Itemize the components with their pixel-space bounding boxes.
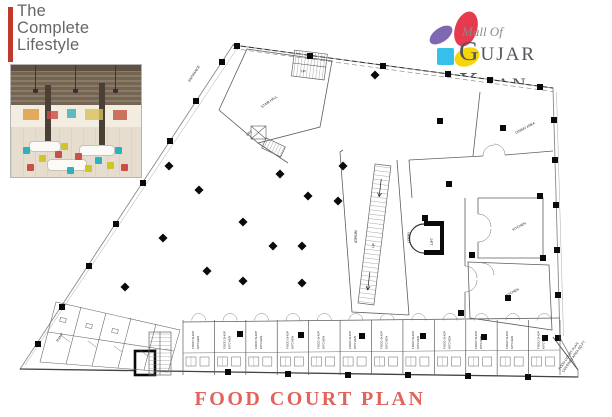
column-marker bbox=[446, 181, 452, 187]
column-marker bbox=[359, 333, 365, 339]
column-marker bbox=[445, 71, 451, 77]
column-marker bbox=[113, 221, 119, 227]
plan-title: FOOD COURT PLAN bbox=[120, 388, 500, 411]
shop-label: FOOD SHOP bbox=[474, 331, 478, 349]
shop-label: KITCHEN bbox=[416, 336, 420, 349]
shop-label: FOOD SHOP bbox=[285, 331, 289, 349]
column-marker bbox=[285, 371, 291, 377]
column-marker bbox=[500, 125, 506, 131]
column-marker bbox=[555, 292, 561, 298]
column-marker bbox=[380, 63, 386, 69]
column-marker bbox=[551, 117, 557, 123]
shop-label: FOOD SHOP bbox=[380, 331, 384, 349]
plan-micro-label: LOBBY bbox=[407, 231, 411, 243]
column-marker bbox=[86, 263, 92, 269]
lift-label: LIFT bbox=[430, 238, 434, 245]
shop-label: FOOD SHOP bbox=[411, 331, 415, 349]
column-marker bbox=[59, 304, 65, 310]
column-marker bbox=[237, 331, 243, 337]
column-marker bbox=[193, 98, 199, 104]
plan-outline bbox=[20, 45, 578, 377]
shop-label: FOOD SHOP bbox=[222, 331, 226, 349]
shop-label: FOOD SHOP bbox=[442, 331, 446, 349]
column-marker bbox=[525, 374, 531, 380]
column-marker bbox=[422, 215, 428, 221]
shop-label: KITCHEN bbox=[322, 336, 326, 349]
floor-plan-svg: LIFT FOOD SHOPKITCHENFOOD SHOPKITCHENFOO… bbox=[0, 0, 612, 417]
shop-label: KITCHEN bbox=[542, 336, 546, 349]
shop-label: KITCHEN bbox=[510, 336, 514, 349]
shop-label: KITCHEN bbox=[353, 336, 357, 349]
shop-label: KITCHEN bbox=[447, 336, 451, 349]
shop-label: KITCHEN bbox=[479, 336, 483, 349]
column-marker bbox=[554, 247, 560, 253]
column-marker bbox=[458, 310, 464, 316]
column-marker bbox=[307, 53, 313, 59]
column-marker bbox=[219, 59, 225, 65]
lift-shaft bbox=[135, 351, 155, 375]
shop-label: FOOD SHOP bbox=[348, 331, 352, 349]
plan-micro-label: ATRIUM bbox=[354, 230, 358, 243]
column-marker bbox=[420, 333, 426, 339]
column-marker bbox=[345, 372, 351, 378]
column-marker bbox=[537, 193, 543, 199]
shop-label: KITCHEN bbox=[385, 336, 389, 349]
column-marker bbox=[35, 341, 41, 347]
column-marker bbox=[487, 77, 493, 83]
column-marker bbox=[540, 255, 546, 261]
column-marker bbox=[552, 157, 558, 163]
column-marker bbox=[437, 118, 443, 124]
shop-label: KITCHEN bbox=[227, 336, 231, 349]
shop-label: KITCHEN bbox=[259, 336, 263, 349]
column-marker bbox=[469, 252, 475, 258]
shop-label: FOOD SHOP bbox=[317, 331, 321, 349]
column-marker bbox=[140, 180, 146, 186]
shop-label: FOOD SHOP bbox=[537, 331, 541, 349]
shop-label: KITCHEN bbox=[290, 336, 294, 349]
shop-label: FOOD SHOP bbox=[191, 331, 195, 349]
column-marker bbox=[167, 138, 173, 144]
column-marker bbox=[537, 84, 543, 90]
column-marker bbox=[405, 372, 411, 378]
column-marker bbox=[225, 369, 231, 375]
shop-label: FOOD SHOP bbox=[254, 331, 258, 349]
column-marker bbox=[234, 43, 240, 49]
column-marker bbox=[298, 332, 304, 338]
shop-label: FOOD SHOP bbox=[505, 331, 509, 349]
shop-label: KITCHEN bbox=[196, 336, 200, 349]
column-marker bbox=[553, 202, 559, 208]
plan-micro-label: ENTRANCE bbox=[187, 64, 201, 82]
